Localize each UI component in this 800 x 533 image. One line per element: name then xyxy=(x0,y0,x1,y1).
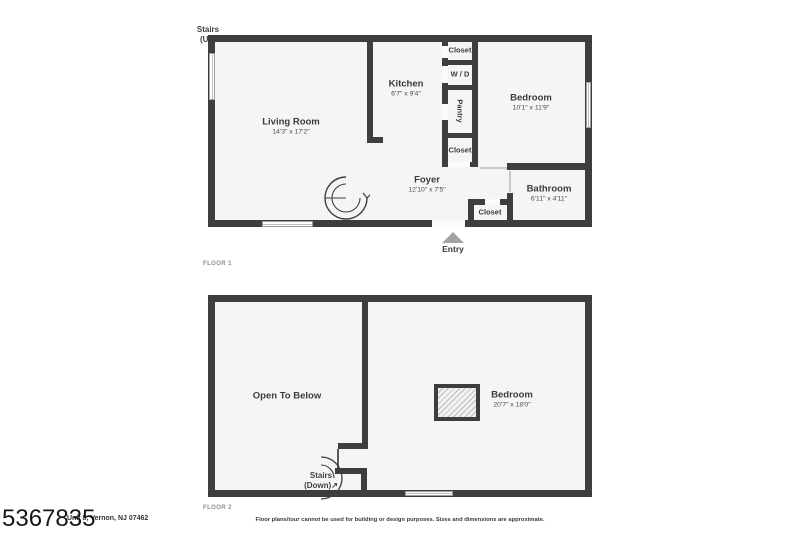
room-name: Bathroom xyxy=(527,184,572,195)
floor1-tag: FLOOR 1 xyxy=(203,261,232,267)
wall xyxy=(361,474,367,491)
wall xyxy=(468,199,474,220)
room-name: Open To Below xyxy=(253,390,321,401)
window xyxy=(405,491,453,497)
wall xyxy=(585,35,592,227)
wall xyxy=(208,295,215,497)
floor2-tag: FLOOR 2 xyxy=(203,505,232,511)
room-dims: 14'3" x 17'2" xyxy=(262,129,320,137)
bedroom1-label: Bedroom 10'1" x 11'9" xyxy=(510,93,552,114)
bathroom-door-line xyxy=(509,171,511,192)
stairs-down-label: Stairs (Down)↗ xyxy=(304,471,338,491)
bedroom-door-line xyxy=(480,167,507,169)
stairs-up-line2: (Up) xyxy=(197,35,219,45)
chimney-hatch xyxy=(434,384,480,421)
wall xyxy=(367,42,373,137)
bedroom2-label: Bedroom 20'7" x 18'0" xyxy=(491,390,533,411)
kitchen-label: Kitchen 6'7" x 9'4" xyxy=(389,79,424,100)
wall xyxy=(208,295,592,302)
stairs-down-line1: Stairs xyxy=(304,471,338,481)
wall xyxy=(442,133,478,138)
room-dims: 6'7" x 9'4" xyxy=(389,91,424,99)
wall xyxy=(442,60,478,65)
window xyxy=(262,221,313,227)
wall xyxy=(208,490,592,497)
wall xyxy=(208,35,592,42)
foyer-closet-opening xyxy=(485,199,500,205)
room-name: Kitchen xyxy=(389,79,424,90)
closet-opening xyxy=(442,46,448,58)
entry-label: Entry xyxy=(442,244,464,254)
living-room-label: Living Room 14'3" x 17'2" xyxy=(262,117,320,138)
room-name: Bedroom xyxy=(510,93,552,104)
floor2-plan: Stairs (Down)↗ Open To Below Bedroom 20'… xyxy=(208,295,592,497)
stairs-up-label: Stairs (Up) xyxy=(197,25,219,45)
closet-mid-label: Closet xyxy=(449,146,472,155)
disclaimer-text: Floor plans/tour cannot be used for buil… xyxy=(250,517,550,523)
wd-label: W / D xyxy=(451,70,470,79)
wall xyxy=(208,220,432,227)
wall xyxy=(465,220,592,227)
window xyxy=(586,82,592,128)
pantry-opening xyxy=(442,104,448,120)
window xyxy=(209,53,215,100)
room-dims: 6'11" x 4'11" xyxy=(527,196,572,204)
wall xyxy=(585,295,592,497)
wd-opening xyxy=(442,66,448,83)
pantry-label: Pantry xyxy=(456,99,465,122)
room-dims: 20'7" x 18'0" xyxy=(491,402,533,410)
bathroom-label: Bathroom 6'11" x 4'11" xyxy=(527,184,572,205)
wall xyxy=(442,85,478,90)
entry-door-opening xyxy=(432,220,465,227)
room-name: Bedroom xyxy=(491,390,533,401)
wall xyxy=(338,443,368,449)
foyer-label: Foyer 12'10" x 7'5" xyxy=(408,175,445,196)
wall xyxy=(362,302,368,443)
wall xyxy=(507,193,513,220)
stairs-down-line2: (Down)↗ xyxy=(304,481,338,491)
wall xyxy=(507,163,592,170)
closet-foyer-label: Closet xyxy=(479,208,502,217)
closet-top-label: Closet xyxy=(449,46,472,55)
room-name: Foyer xyxy=(408,175,445,186)
wall xyxy=(367,137,383,143)
floorplan-canvas: Stairs (Up) Living Room 14'3" x 17'2" Ki… xyxy=(0,0,800,533)
room-dims: 12'10" x 7'5" xyxy=(408,187,445,195)
floor1-plan: Stairs (Up) Living Room 14'3" x 17'2" Ki… xyxy=(208,35,592,227)
open-to-below-label: Open To Below xyxy=(253,390,321,401)
room-dims: 10'1" x 11'9" xyxy=(510,105,552,113)
stairs-up-line1: Stairs xyxy=(197,25,219,35)
stairs-up-icon xyxy=(322,174,370,222)
listing-id-watermark: 5367835 xyxy=(2,505,95,533)
closet-opening xyxy=(448,162,470,167)
entry-arrow-icon xyxy=(442,232,464,243)
room-name: Living Room xyxy=(262,117,320,128)
